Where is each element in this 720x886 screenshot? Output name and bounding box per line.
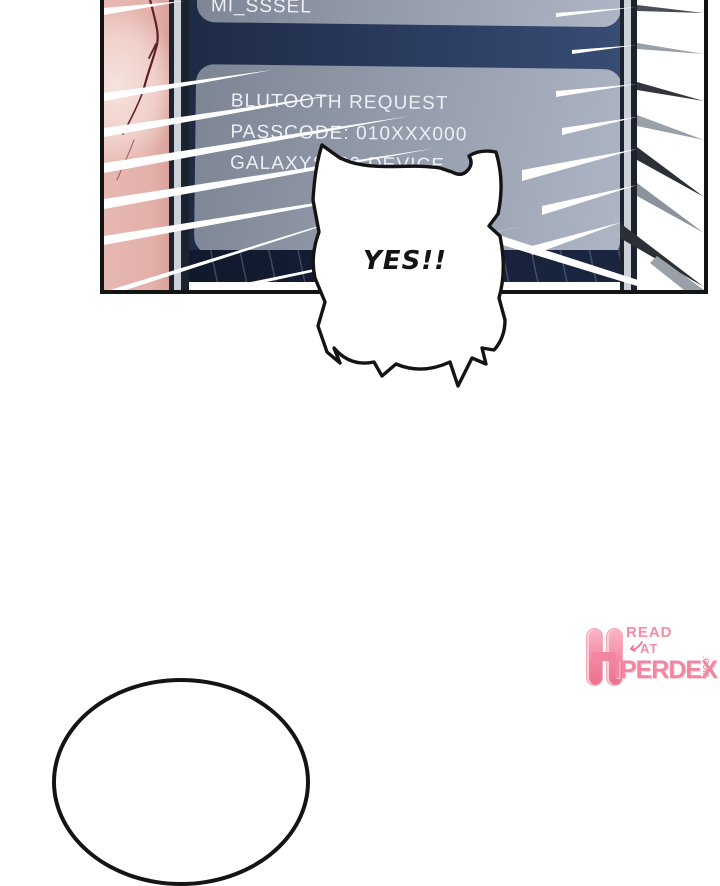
speech-bubble-text: YES!! — [310, 246, 500, 276]
watermark-h-crossbar — [592, 652, 616, 661]
device-name-text: MI_SSSEL — [211, 0, 312, 19]
hiperdex-watermark: READ AT IPERDEX .COM — [584, 616, 712, 698]
notification-card-top: MI_SSSEL — [197, 0, 620, 27]
watermark-com-label: .COM — [701, 656, 710, 677]
watermark-read-label: READ — [626, 624, 673, 641]
speech-bubble: YES!! — [310, 134, 510, 396]
hair-strand-lines — [104, 0, 169, 290]
next-panel-bubble-arc — [52, 678, 310, 886]
notification-line1: BLUTOOTH REQUEST — [231, 86, 468, 120]
phone-right-bezel — [620, 0, 637, 290]
phone-left-bezel — [169, 0, 189, 290]
skin-closeup — [104, 0, 169, 290]
